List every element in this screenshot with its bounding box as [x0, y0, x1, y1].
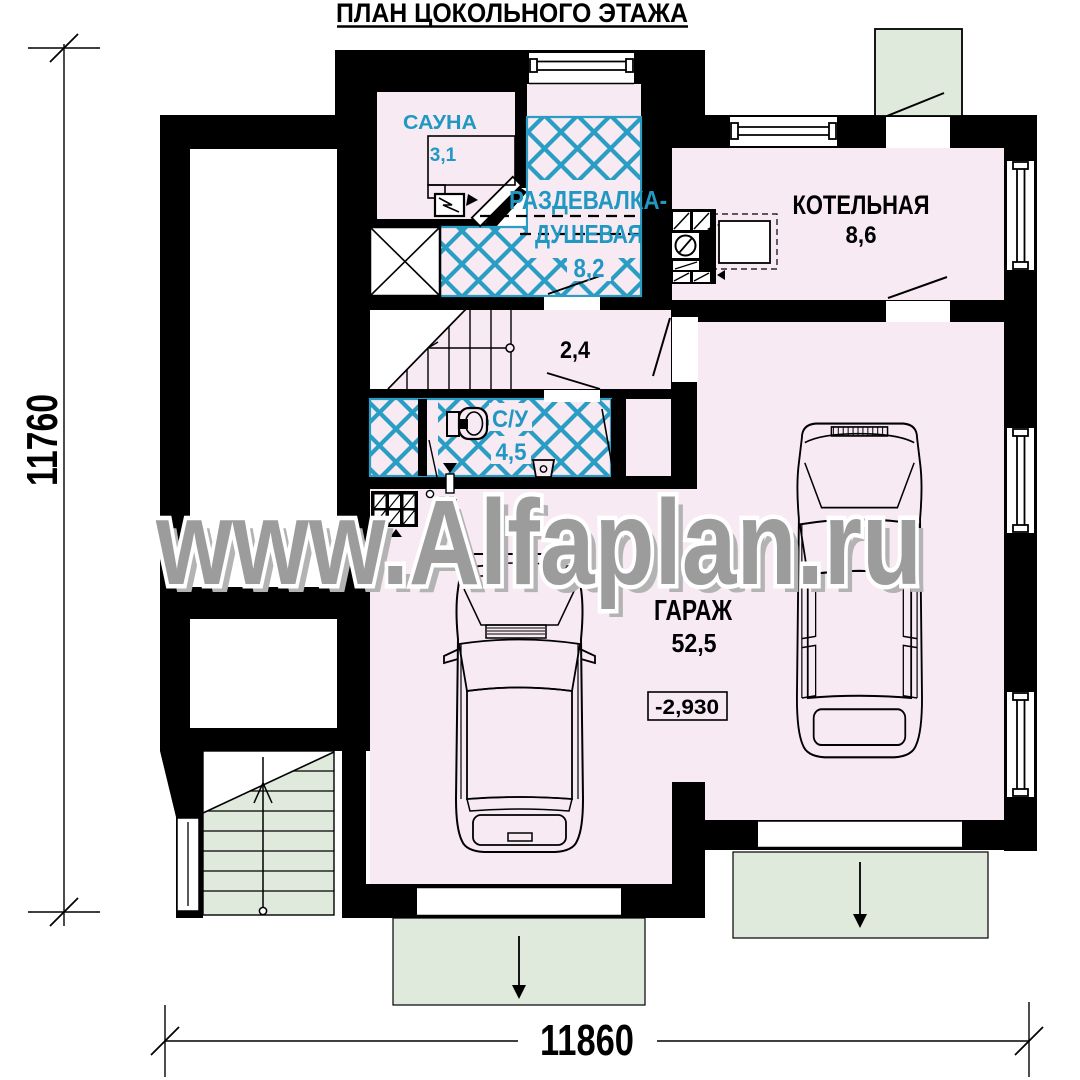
svg-text:САУНА: САУНА	[403, 112, 477, 134]
svg-text:КОТЕЛЬНАЯ: КОТЕЛЬНАЯ	[793, 190, 930, 220]
svg-text:8,2: 8,2	[574, 253, 605, 283]
svg-text:РАЗДЕВАЛКА-: РАЗДЕВАЛКА-	[509, 185, 667, 215]
svg-text:-2,930: -2,930	[655, 696, 719, 719]
svg-text:ПЛАН ЦОКОЛЬНОГО ЭТАЖА: ПЛАН ЦОКОЛЬНОГО ЭТАЖА	[336, 0, 688, 28]
svg-text:2,4: 2,4	[560, 337, 591, 364]
svg-text:С/У: С/У	[492, 406, 529, 433]
svg-text:8,6: 8,6	[846, 222, 877, 249]
svg-text:52,5: 52,5	[672, 628, 717, 658]
svg-text:11860: 11860	[540, 1016, 634, 1065]
svg-text:ДУШЕВАЯ: ДУШЕВАЯ	[535, 219, 643, 249]
svg-text:3,1: 3,1	[430, 145, 457, 166]
svg-text:www.Alfaplan.ru: www.Alfaplan.ru	[155, 474, 922, 610]
svg-text:4,5: 4,5	[496, 439, 527, 466]
svg-text:11760: 11760	[18, 394, 67, 486]
